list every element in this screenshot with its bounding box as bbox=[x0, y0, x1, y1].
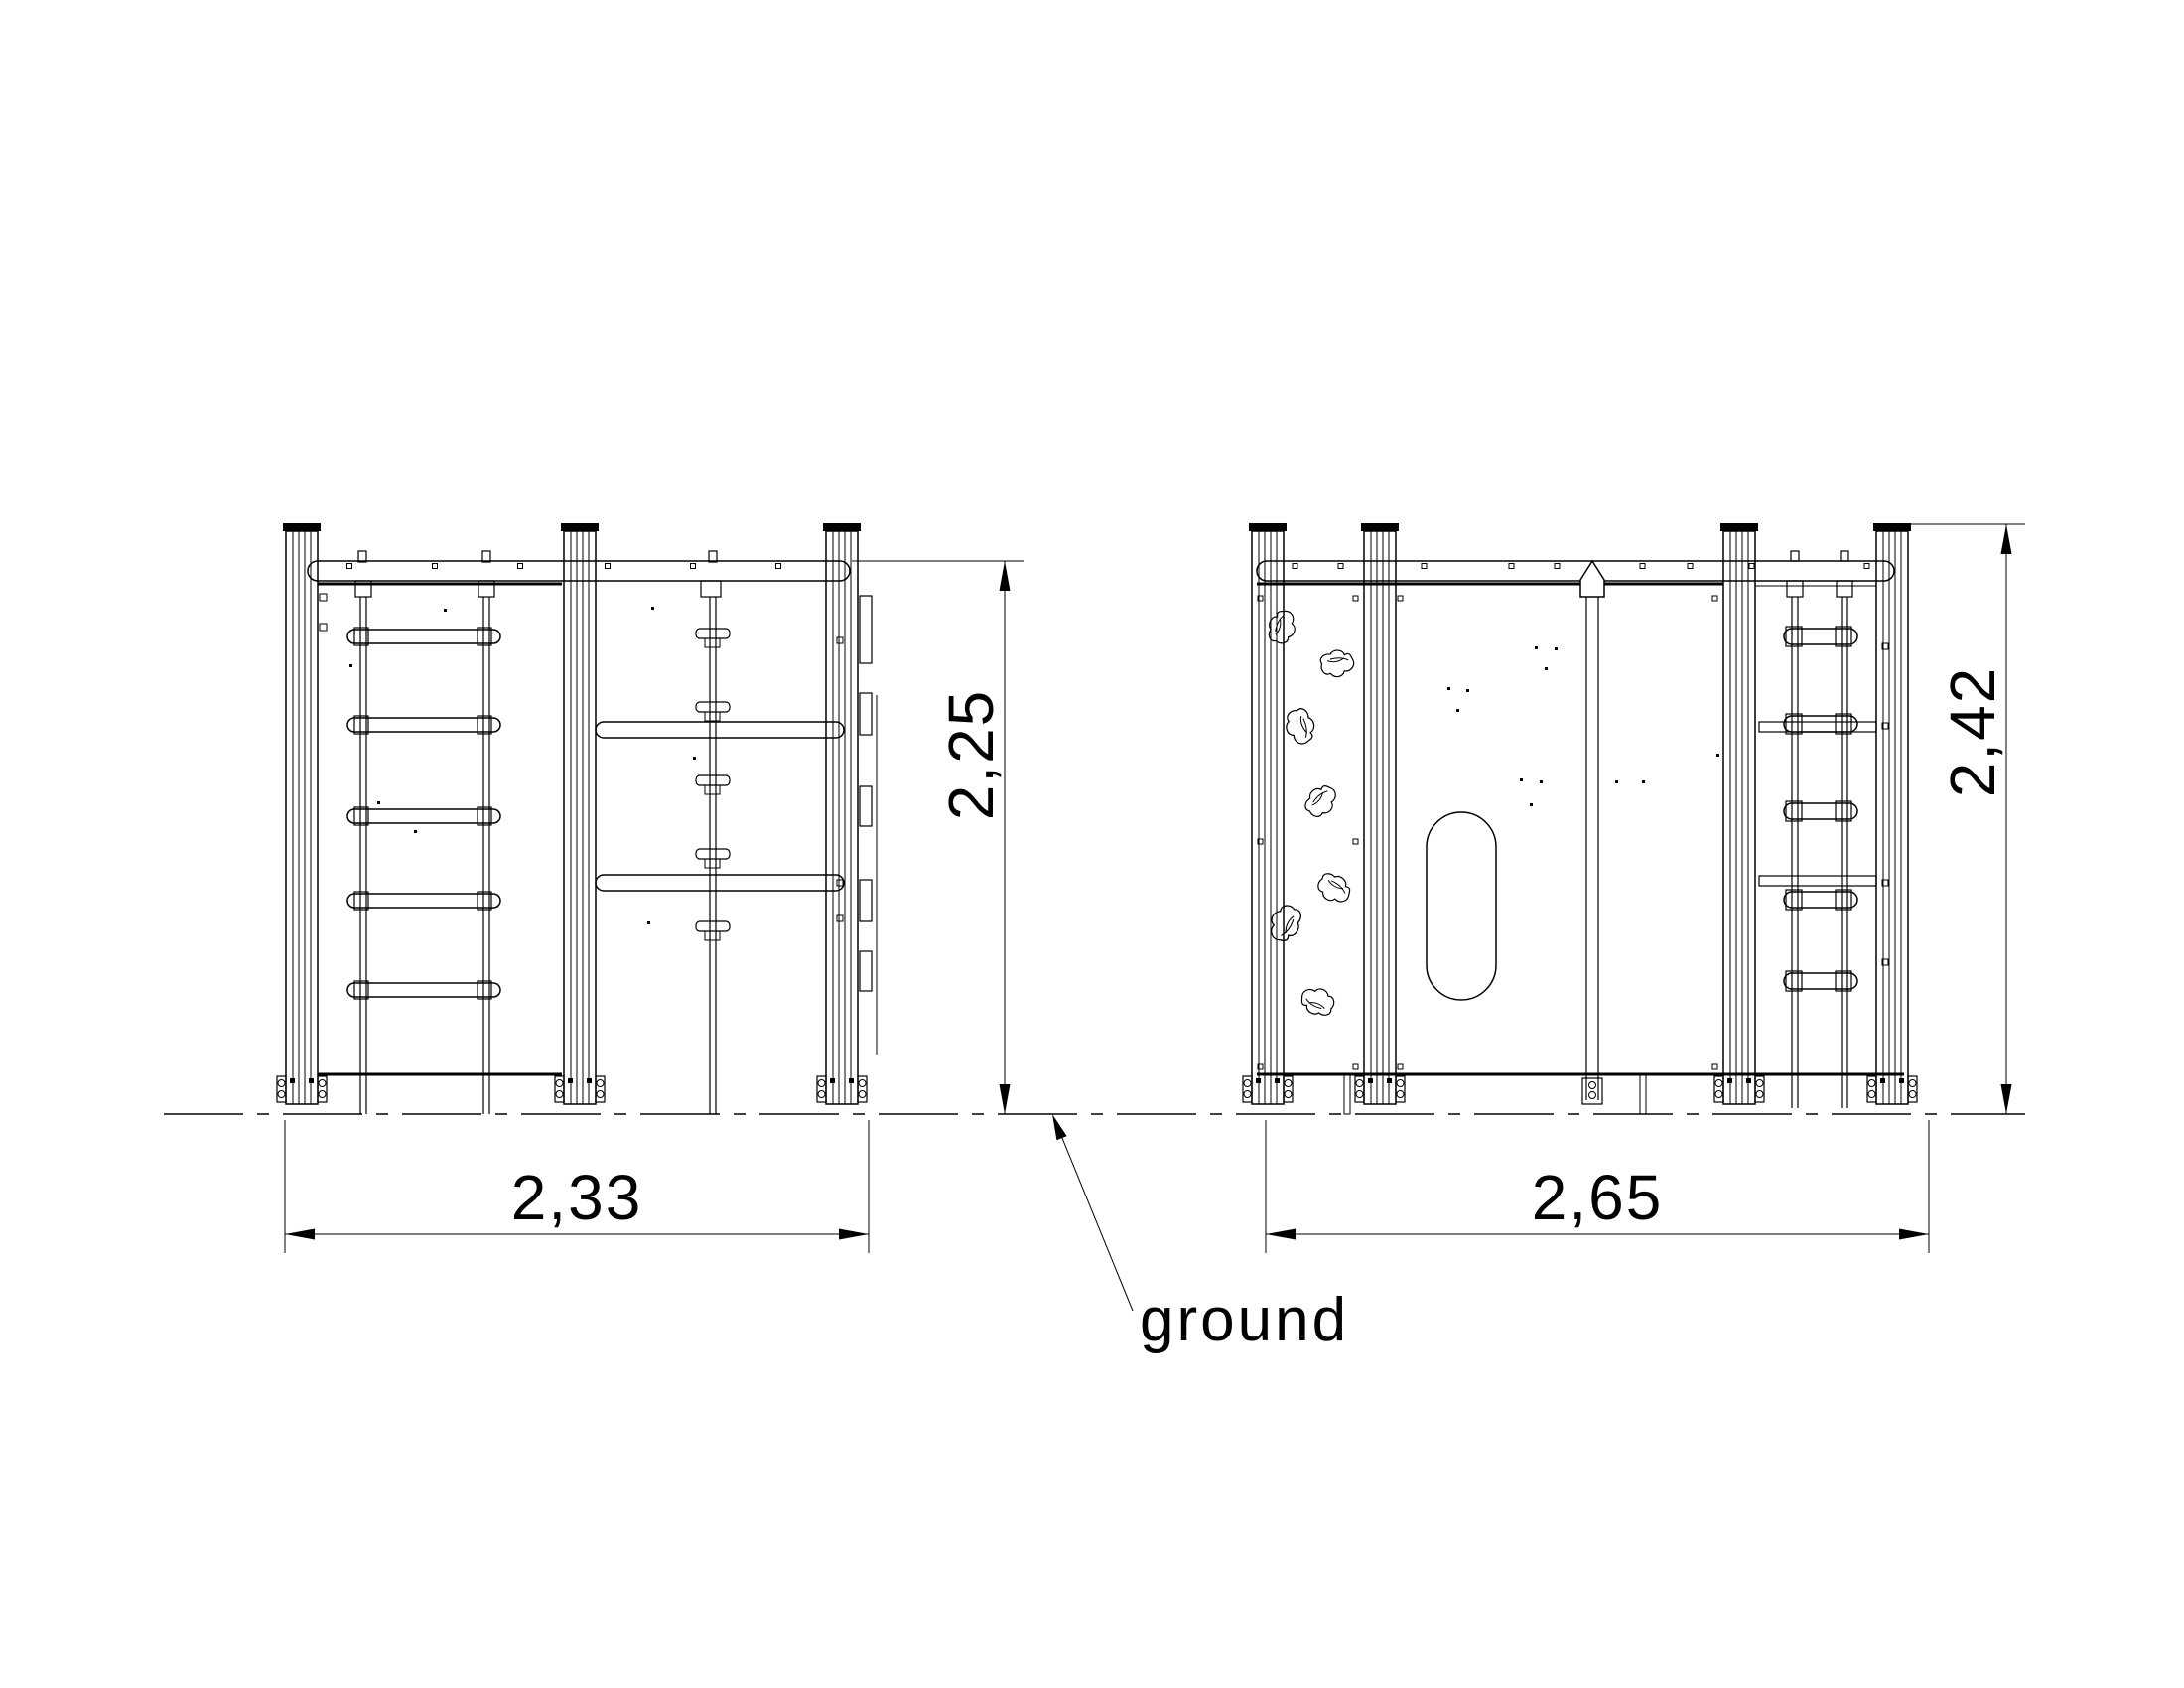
dimension-right-height: 2,42 bbox=[1910, 524, 2025, 1114]
ground-leader-arrow bbox=[1047, 1112, 1067, 1140]
playground-elevation-drawing: ground bbox=[0, 0, 2184, 1688]
right-post-2 bbox=[1355, 523, 1405, 1104]
rope-ladder bbox=[347, 581, 500, 1114]
panel-screws bbox=[349, 607, 696, 924]
cad-drawing-page: ground bbox=[0, 0, 2184, 1688]
climbing-wall bbox=[1265, 608, 1356, 1019]
horizontal-bar-lower bbox=[596, 875, 844, 891]
left-elevation-view: 2,33 2,25 bbox=[277, 523, 1024, 1253]
ground: ground bbox=[164, 1112, 2025, 1354]
porthole-opening bbox=[1427, 812, 1496, 1000]
right-post-4 bbox=[1867, 523, 1917, 1104]
right-elevation-view: 2,65 2,42 bbox=[1243, 523, 2025, 1253]
left-post-2 bbox=[555, 523, 605, 1104]
left-top-beam bbox=[308, 551, 850, 581]
side-rail-lower bbox=[1759, 876, 1876, 886]
dimension-left-height: 2,25 bbox=[852, 561, 1024, 1114]
centre-slat bbox=[1580, 561, 1604, 1104]
left-width-value: 2,33 bbox=[511, 1162, 643, 1233]
right-post-3 bbox=[1714, 523, 1764, 1104]
right-post-1 bbox=[1243, 523, 1293, 1104]
panel-corner-bolts bbox=[1258, 596, 1717, 1069]
dimension-right-width: 2,65 bbox=[1266, 1120, 1929, 1253]
rope-ladder-rungs bbox=[347, 628, 500, 999]
ground-leader-line bbox=[1055, 1121, 1133, 1311]
ladder-rungs bbox=[1784, 627, 1857, 991]
right-width-value: 2,65 bbox=[1532, 1162, 1664, 1233]
panel-screws bbox=[1447, 646, 1719, 806]
ladder bbox=[1784, 551, 1857, 1108]
dimension-left-width: 2,33 bbox=[285, 1120, 869, 1253]
left-post-1 bbox=[277, 523, 327, 1104]
right-height-value: 2,42 bbox=[1937, 666, 2008, 798]
panel-leg bbox=[1344, 1074, 1350, 1114]
panel-leg bbox=[1640, 1074, 1646, 1114]
porthole-panel bbox=[1258, 596, 1719, 1069]
left-height-value: 2,25 bbox=[935, 689, 1007, 821]
right-top-beam bbox=[1257, 561, 1894, 581]
side-rail-upper bbox=[1759, 722, 1876, 732]
horizontal-bar-upper bbox=[596, 722, 844, 738]
ground-label: ground bbox=[1140, 1286, 1349, 1354]
knotted-climbing-rope bbox=[696, 581, 730, 1114]
side-brackets bbox=[860, 596, 877, 1055]
